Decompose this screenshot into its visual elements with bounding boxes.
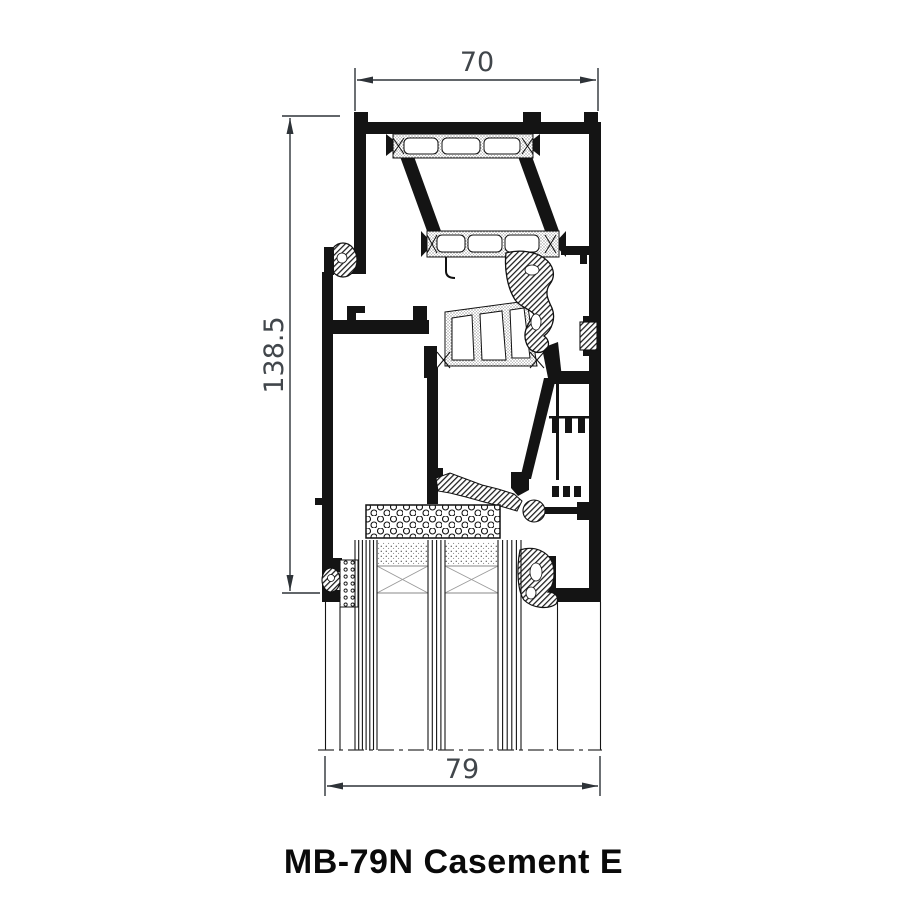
- glazing-unit: [318, 505, 602, 750]
- dim-label-height: 138.5: [259, 316, 290, 393]
- insulation-block: [366, 505, 500, 538]
- dim-arrow-left-icon: [357, 77, 373, 84]
- frame-right-wall: [589, 122, 601, 602]
- gasket-right-mid: [580, 322, 597, 350]
- dim-arrow-up-icon: [287, 118, 294, 134]
- gasket-round-right: [523, 500, 545, 522]
- frame-left-upper-wall: [354, 122, 366, 274]
- frame-left-lower-wall: [322, 272, 333, 602]
- frame-bottom-bar: [553, 588, 601, 602]
- dim-arrow-down-icon: [287, 575, 294, 591]
- dim-arrow-right-icon: [580, 77, 596, 84]
- spacer-speckle-1: [377, 542, 428, 566]
- technical-drawing-page: 70 138.5 79 MB-79N Casement E: [0, 0, 907, 907]
- drawing-title: MB-79N Casement E: [0, 843, 907, 882]
- profile-cross-section-drawing: 70 138.5 79: [0, 0, 907, 907]
- dim-arrow-left-icon: [327, 783, 343, 790]
- frame-top-bar: [354, 122, 601, 134]
- spacer-speckle-2: [445, 542, 498, 566]
- dim-label-top: 70: [460, 47, 494, 78]
- top-width-dimension: 70: [355, 47, 598, 111]
- dim-label-bottom: 79: [445, 754, 479, 785]
- bottom-width-dimension: 79: [325, 754, 600, 796]
- dim-arrow-right-icon: [582, 783, 598, 790]
